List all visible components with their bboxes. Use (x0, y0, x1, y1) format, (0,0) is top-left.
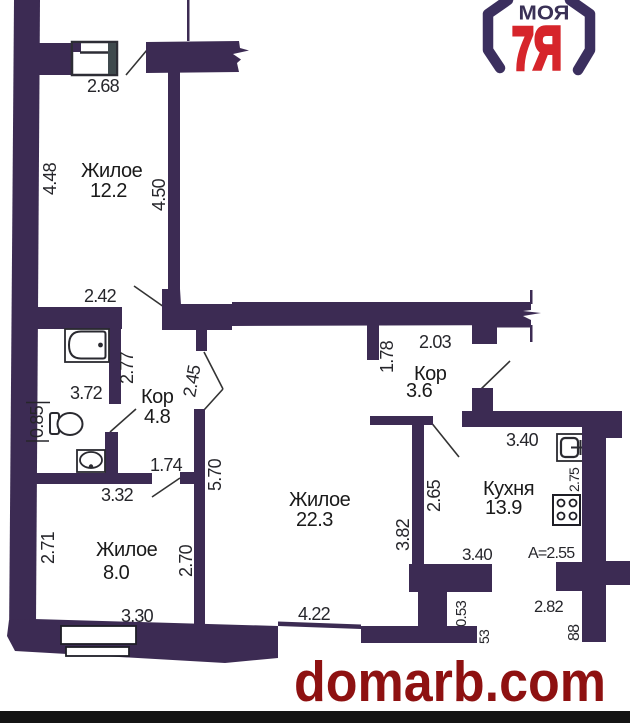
svg-text:22.3: 22.3 (296, 509, 333, 531)
svg-text:A=2.55: A=2.55 (528, 545, 575, 562)
svg-text:5.70: 5.70 (205, 458, 225, 491)
svg-text:domarb.com: domarb.com (294, 650, 606, 714)
svg-text:3.32: 3.32 (101, 485, 134, 505)
svg-text:4.48: 4.48 (40, 162, 60, 195)
svg-text:0.85: 0.85 (27, 405, 47, 438)
svg-text:12.2: 12.2 (90, 180, 127, 202)
svg-text:2.75: 2.75 (566, 467, 582, 492)
svg-text:2.65: 2.65 (424, 479, 444, 512)
svg-text:2.68: 2.68 (87, 76, 120, 96)
svg-text:3.40: 3.40 (506, 430, 539, 450)
svg-text:0.53: 0.53 (453, 601, 470, 627)
svg-text:2.71: 2.71 (38, 531, 58, 564)
svg-text:3.72: 3.72 (70, 383, 103, 403)
svg-text:13.9: 13.9 (485, 497, 522, 519)
svg-text:1.78: 1.78 (377, 340, 397, 373)
svg-text:8.0: 8.0 (103, 562, 130, 584)
svg-text:4.8: 4.8 (144, 406, 171, 428)
svg-text:Жилое: Жилое (96, 539, 158, 561)
svg-text:2.42: 2.42 (84, 286, 117, 306)
svg-text:3.40: 3.40 (462, 545, 492, 564)
svg-text:2.77: 2.77 (117, 351, 137, 384)
svg-text:2.70: 2.70 (176, 544, 196, 577)
svg-text:7Я: 7Я (512, 15, 562, 82)
svg-text:2.82: 2.82 (534, 598, 564, 616)
svg-text:1.74: 1.74 (150, 455, 183, 475)
svg-text:3.82: 3.82 (393, 518, 413, 551)
svg-text:3.6: 3.6 (406, 380, 433, 402)
svg-text:Жилое: Жилое (289, 489, 351, 511)
svg-text:Кор: Кор (141, 386, 174, 408)
svg-text:Жилое: Жилое (81, 160, 143, 182)
svg-text:53: 53 (476, 629, 492, 644)
svg-text:4.22: 4.22 (298, 604, 331, 624)
svg-text:2.03: 2.03 (419, 332, 452, 352)
svg-text:88: 88 (566, 624, 583, 641)
svg-text:4.50: 4.50 (149, 178, 169, 211)
